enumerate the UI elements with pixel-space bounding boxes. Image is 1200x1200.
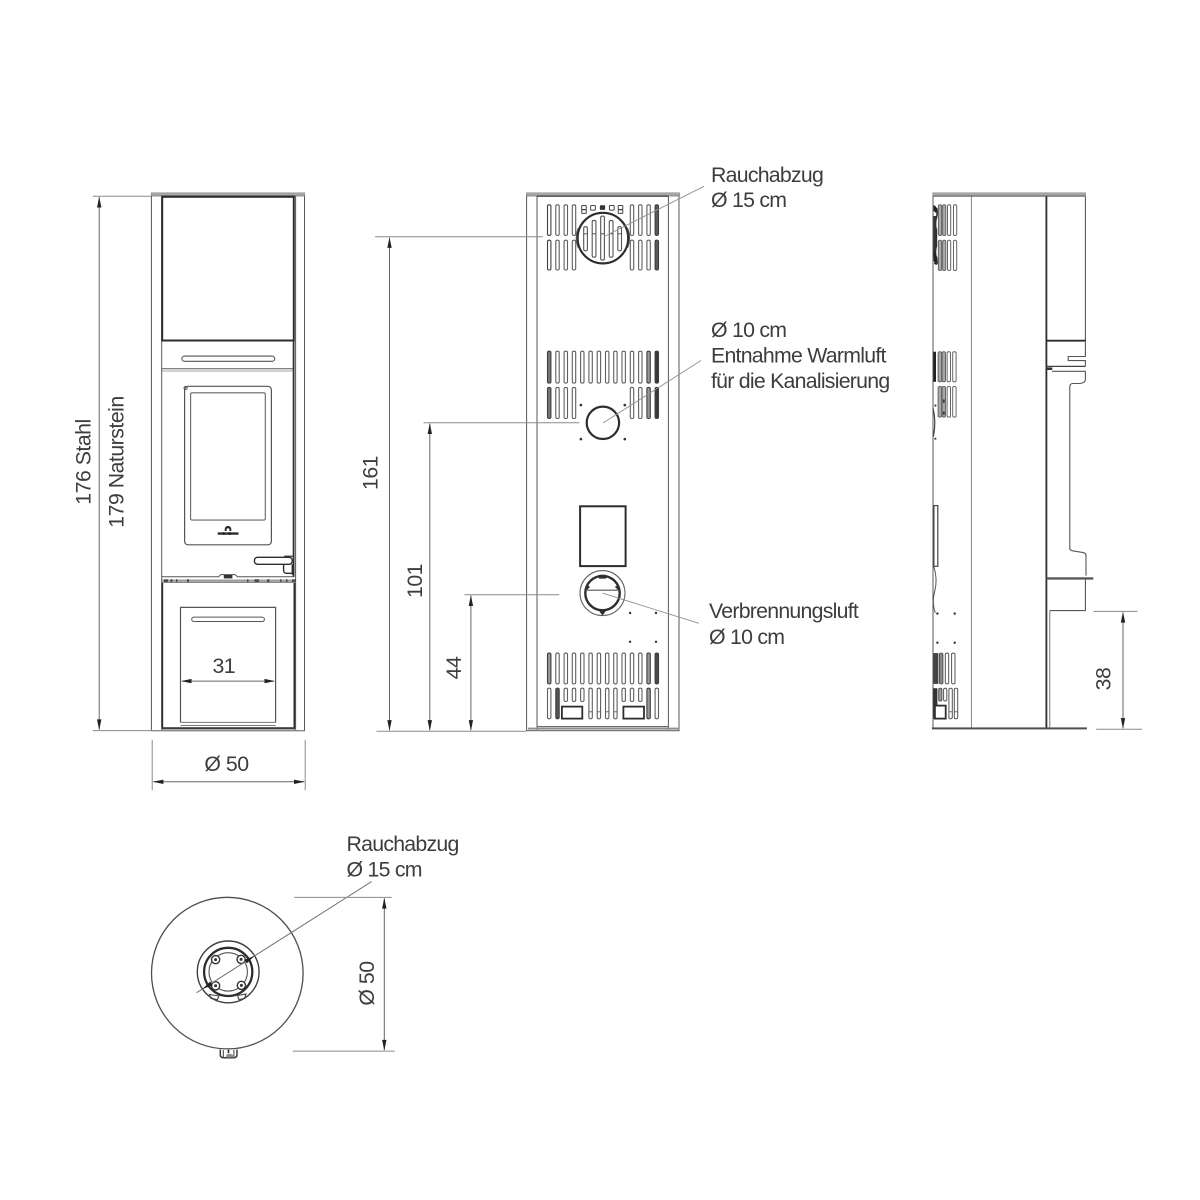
svg-text:101: 101 [403,564,427,598]
svg-text:179 Naturstein: 179 Naturstein [105,396,129,528]
svg-text:38: 38 [1092,668,1116,691]
svg-text:Ø 15 cm: Ø 15 cm [347,858,422,882]
svg-text:Rauchabzug: Rauchabzug [347,832,459,856]
svg-text:für die Kanalisierung: für die Kanalisierung [711,369,889,393]
svg-text:Ø 10 cm: Ø 10 cm [711,318,786,342]
svg-text:Rauchabzug: Rauchabzug [711,163,823,187]
svg-text:Verbrennungsluft: Verbrennungsluft [709,599,859,623]
svg-text:Ø 15 cm: Ø 15 cm [711,188,786,212]
svg-text:161: 161 [359,456,383,490]
svg-text:31: 31 [212,654,235,678]
svg-text:44: 44 [442,656,466,679]
svg-text:Ø 50: Ø 50 [204,752,249,776]
svg-text:Ø 50: Ø 50 [355,961,379,1006]
svg-text:Ø 10 cm: Ø 10 cm [709,625,784,649]
svg-text:176 Stahl: 176 Stahl [72,419,96,505]
svg-text:Entnahme Warmluft: Entnahme Warmluft [711,344,886,368]
